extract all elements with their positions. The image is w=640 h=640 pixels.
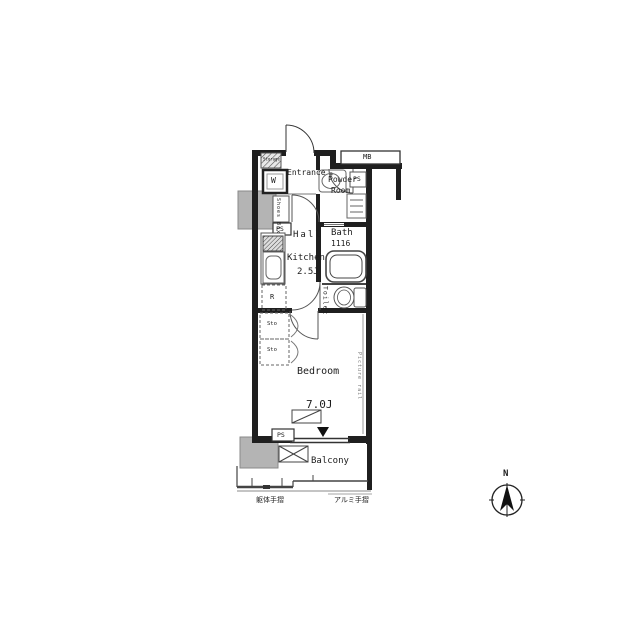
- storage-small-label: Storage: [263, 158, 280, 162]
- washer-label: W: [271, 177, 276, 185]
- rail-left-label: 躯体手摺: [256, 497, 284, 504]
- stove-icon: [263, 236, 283, 251]
- balcony-rail: [237, 466, 372, 494]
- entrance-door-arc: [286, 125, 314, 153]
- kitchen-label: Kitchen: [287, 254, 325, 263]
- bedroom-label: Bedroom: [297, 367, 339, 377]
- rail-right-label: アルミ手摺: [334, 497, 369, 504]
- entrance-label: Entrance: [287, 169, 326, 177]
- bath-size-label: 1116: [331, 240, 350, 248]
- toilet-label: Toilet: [322, 286, 329, 315]
- outdoor-unit-box: [279, 446, 308, 462]
- window-marker-icon: [317, 427, 329, 437]
- pipe-space-hall-label: PS: [276, 226, 284, 233]
- toilet-door-arc: [292, 282, 320, 310]
- compass: [489, 483, 525, 517]
- balcony-label: Balcony: [311, 457, 349, 466]
- meter-box-label: MB: [363, 154, 371, 161]
- storage-closet-top: [260, 313, 298, 339]
- closet-bottom-label: Sto: [267, 348, 277, 354]
- kitchen-size-label: 2.5J: [297, 268, 319, 277]
- closet-top-label: Sto: [267, 322, 277, 328]
- balcony-window: [290, 439, 350, 443]
- bedroom-size-label: 7.0J: [306, 399, 333, 410]
- fridge-label: R: [270, 294, 274, 301]
- picture-rail-label: Picture rail: [356, 352, 361, 400]
- bathtub-icon: [326, 251, 366, 282]
- hall-label: Hall: [293, 231, 323, 240]
- linen-cabinet-icon: [347, 194, 366, 218]
- pipe-space-top-label: PS: [353, 176, 361, 183]
- compass-north-label: N: [503, 470, 508, 479]
- pipe-space-balcony-label: PS: [277, 432, 285, 439]
- powder-room-label-line2: Room: [331, 187, 350, 195]
- storage-closet-bottom: [260, 339, 298, 365]
- bath-label: Bath: [331, 229, 353, 238]
- ac-unit-box: [292, 410, 321, 423]
- toilet-icon: [334, 287, 366, 308]
- floorplan-drawing: [0, 0, 640, 640]
- hall-door-arc: [292, 195, 319, 222]
- bath-door: [324, 223, 344, 226]
- floorplan-page: Entrance Powder Room Hall Bath 1116 Kitc…: [0, 0, 640, 640]
